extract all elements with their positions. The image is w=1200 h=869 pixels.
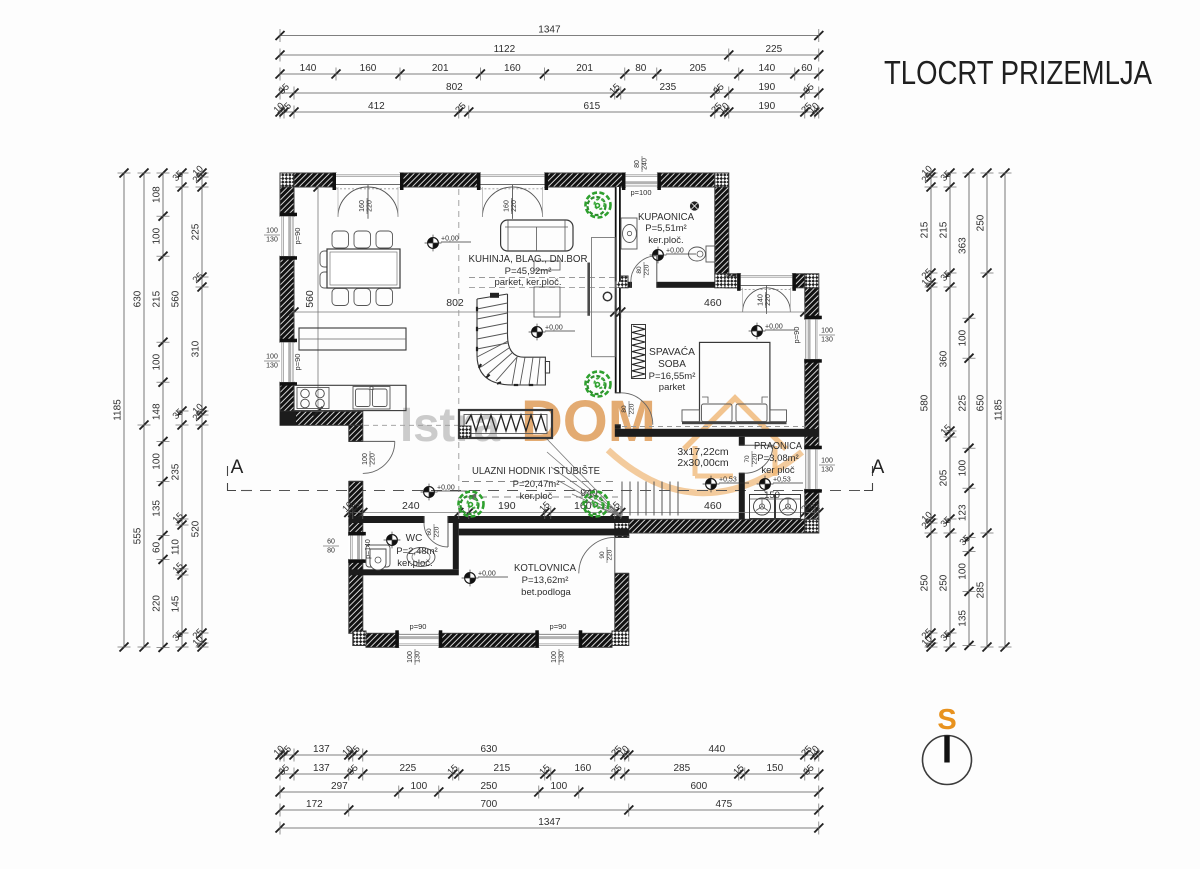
svg-text:137: 137: [313, 763, 330, 774]
svg-text:220: 220: [434, 526, 441, 537]
svg-text:240: 240: [642, 158, 649, 170]
svg-text:100: 100: [152, 227, 163, 244]
svg-text:297: 297: [331, 781, 348, 792]
svg-text:160: 160: [359, 200, 366, 212]
svg-text:ker.ploč.: ker.ploč.: [397, 558, 432, 569]
svg-text:100: 100: [958, 563, 969, 580]
svg-text:100: 100: [152, 353, 163, 370]
svg-text:TLOCRT PRIZEMLJA: TLOCRT PRIZEMLJA: [884, 54, 1152, 91]
svg-text:P=3,08m²: P=3,08m²: [757, 453, 798, 464]
svg-text:650: 650: [976, 394, 987, 411]
svg-text:P=13,62m²: P=13,62m²: [522, 575, 569, 586]
svg-text:555: 555: [133, 527, 144, 544]
svg-text:560: 560: [171, 290, 182, 307]
svg-text:235: 235: [659, 82, 676, 93]
svg-text:130: 130: [559, 651, 566, 663]
svg-text:S: S: [937, 704, 956, 736]
svg-text:1185: 1185: [113, 399, 124, 421]
svg-text:225: 225: [191, 223, 202, 240]
svg-text:215: 215: [920, 221, 931, 238]
svg-text:220: 220: [152, 595, 163, 612]
svg-text:+0,00: +0,00: [545, 325, 563, 332]
svg-text:137: 137: [313, 744, 330, 755]
svg-text:460: 460: [704, 500, 722, 512]
svg-text:100: 100: [821, 328, 833, 335]
svg-text:250: 250: [976, 214, 987, 231]
svg-text:135: 135: [152, 500, 163, 517]
svg-text:285: 285: [673, 763, 690, 774]
svg-text:bet.podloga: bet.podloga: [521, 587, 571, 598]
svg-text:145: 145: [171, 595, 182, 612]
svg-text:310: 310: [191, 340, 202, 357]
svg-text:60: 60: [327, 539, 335, 546]
svg-text:160: 160: [360, 63, 377, 74]
svg-text:p=90: p=90: [293, 354, 302, 371]
svg-text:225: 225: [765, 44, 782, 55]
svg-text:250: 250: [939, 574, 950, 591]
svg-text:2x30,00cm: 2x30,00cm: [677, 457, 729, 469]
svg-text:700: 700: [480, 799, 497, 810]
svg-text:220: 220: [511, 200, 518, 212]
svg-text:250: 250: [480, 781, 497, 792]
svg-text:220: 220: [370, 453, 377, 465]
svg-text:205: 205: [939, 469, 950, 486]
svg-text:60: 60: [152, 541, 163, 553]
svg-text:+0,00: +0,00: [765, 324, 783, 331]
svg-text:+0,53: +0,53: [773, 477, 791, 484]
svg-text:240: 240: [402, 500, 420, 512]
svg-text:220: 220: [765, 294, 772, 306]
svg-text:215: 215: [939, 221, 950, 238]
svg-text:580: 580: [920, 394, 931, 411]
svg-text:140: 140: [758, 63, 775, 74]
svg-text:90: 90: [599, 551, 606, 559]
svg-text:802: 802: [446, 82, 463, 93]
svg-text:P=16,55m²: P=16,55m²: [649, 371, 696, 382]
svg-text:+0,00: +0,00: [666, 248, 684, 255]
svg-text:70: 70: [744, 455, 751, 463]
svg-text:100: 100: [550, 781, 567, 792]
svg-text:150: 150: [764, 490, 780, 501]
svg-text:WC: WC: [406, 533, 423, 544]
svg-text:215: 215: [152, 290, 163, 307]
svg-text:160: 160: [504, 63, 521, 74]
svg-text:110: 110: [171, 539, 182, 555]
svg-text:150: 150: [766, 763, 783, 774]
svg-text:100: 100: [958, 459, 969, 476]
svg-text:220: 220: [629, 403, 636, 414]
svg-text:parket: parket: [659, 382, 686, 393]
svg-text:130: 130: [415, 651, 422, 663]
svg-text:130: 130: [266, 363, 278, 370]
svg-text:p=100: p=100: [630, 188, 651, 197]
svg-text:p=90: p=90: [293, 228, 302, 245]
svg-text:KUPAONICA: KUPAONICA: [638, 212, 694, 223]
svg-text:+0,53: +0,53: [719, 477, 737, 484]
svg-text:p=90: p=90: [550, 622, 567, 631]
svg-text:80: 80: [621, 405, 628, 413]
svg-text:363: 363: [958, 237, 969, 254]
svg-text:130: 130: [821, 337, 833, 344]
svg-text:285: 285: [976, 581, 987, 598]
svg-text:160: 160: [504, 200, 511, 212]
svg-text:140: 140: [300, 63, 317, 74]
svg-text:440: 440: [708, 744, 725, 755]
svg-text:215: 215: [493, 763, 510, 774]
svg-text:100: 100: [362, 453, 369, 465]
svg-text:802: 802: [446, 297, 464, 309]
svg-text:PRAONICA: PRAONICA: [754, 441, 802, 452]
svg-text:475: 475: [715, 799, 732, 810]
svg-text:100: 100: [407, 651, 414, 663]
svg-text:P=20,47m²: P=20,47m²: [513, 479, 560, 490]
svg-text:360: 360: [939, 350, 950, 367]
svg-text:DOM: DOM: [521, 389, 656, 454]
svg-text:205: 205: [689, 63, 706, 74]
svg-text:123: 123: [958, 504, 969, 521]
svg-text:225: 225: [399, 763, 416, 774]
svg-text:100: 100: [821, 458, 833, 465]
svg-text:190: 190: [758, 82, 775, 93]
svg-text:1122: 1122: [494, 44, 516, 55]
svg-text:201: 201: [576, 63, 593, 74]
svg-text:220: 220: [367, 200, 374, 212]
svg-text:220: 220: [752, 453, 759, 464]
svg-text:p=90: p=90: [410, 622, 427, 631]
svg-text:630: 630: [480, 744, 497, 755]
svg-text:100: 100: [152, 453, 163, 470]
svg-text:1185: 1185: [994, 399, 1005, 421]
svg-text:80: 80: [634, 160, 641, 168]
svg-text:225: 225: [958, 394, 969, 411]
svg-text:130: 130: [821, 467, 833, 474]
svg-text:ker ploč: ker ploč: [761, 465, 795, 476]
svg-text:80: 80: [327, 548, 335, 555]
svg-text:p=140: p=140: [365, 539, 372, 559]
svg-text:60: 60: [801, 63, 813, 74]
svg-text:ULAZNI HODNIK I STUBIŠTE: ULAZNI HODNIK I STUBIŠTE: [472, 464, 600, 477]
svg-text:60: 60: [426, 528, 433, 536]
svg-text:160: 160: [574, 763, 591, 774]
svg-text:1347: 1347: [538, 817, 561, 828]
svg-text:108: 108: [152, 186, 163, 203]
svg-text:100: 100: [410, 781, 427, 792]
svg-text:412: 412: [368, 101, 385, 112]
svg-text:SPAVAĆA: SPAVAĆA: [649, 345, 695, 358]
svg-text:250: 250: [920, 574, 931, 591]
svg-text:130: 130: [266, 237, 278, 244]
svg-text:A: A: [872, 457, 885, 478]
svg-text:190: 190: [498, 500, 516, 512]
svg-text:100: 100: [266, 228, 278, 235]
svg-text:P=45,92m²: P=45,92m²: [505, 266, 552, 277]
svg-text:parket, ker.ploč.: parket, ker.ploč.: [494, 277, 561, 288]
svg-text:190: 190: [758, 101, 775, 112]
svg-text:P=2,48m²: P=2,48m²: [396, 546, 437, 557]
svg-text:172: 172: [306, 799, 323, 810]
svg-text:ker.ploč: ker.ploč: [520, 491, 553, 502]
svg-text:P=5,51m²: P=5,51m²: [645, 223, 686, 234]
svg-text:135: 135: [958, 610, 969, 627]
svg-text:ker.ploč.: ker.ploč.: [648, 235, 683, 246]
svg-text:220: 220: [644, 264, 651, 275]
svg-text:100: 100: [551, 651, 558, 663]
svg-text:460: 460: [704, 297, 722, 309]
svg-text:100: 100: [266, 354, 278, 361]
svg-text:80: 80: [636, 266, 643, 274]
svg-text:140: 140: [758, 294, 765, 306]
svg-text:KUHINJA, BLAG., DN.BOR: KUHINJA, BLAG., DN.BOR: [469, 254, 588, 265]
svg-text:+0,00: +0,00: [441, 236, 459, 243]
svg-text:148: 148: [152, 403, 163, 420]
svg-text:KOTLOVNICA: KOTLOVNICA: [514, 563, 576, 574]
svg-text:615: 615: [583, 101, 600, 112]
svg-text:+0,00: +0,00: [437, 485, 455, 492]
svg-text:520: 520: [191, 520, 202, 537]
svg-text:235: 235: [171, 463, 182, 480]
svg-text:630: 630: [133, 290, 144, 307]
svg-text:+0,00: +0,00: [478, 571, 496, 578]
svg-text:220: 220: [607, 549, 614, 560]
svg-text:Istra: Istra: [400, 399, 500, 452]
svg-text:201: 201: [432, 63, 449, 74]
svg-text:600: 600: [690, 781, 707, 792]
svg-text:80: 80: [635, 63, 647, 74]
svg-text:100: 100: [958, 329, 969, 346]
svg-text:560: 560: [304, 290, 316, 308]
svg-text:A: A: [231, 457, 244, 478]
svg-text:1347: 1347: [538, 25, 561, 36]
svg-text:p=90: p=90: [792, 327, 801, 344]
svg-text:SOBA: SOBA: [658, 359, 686, 370]
